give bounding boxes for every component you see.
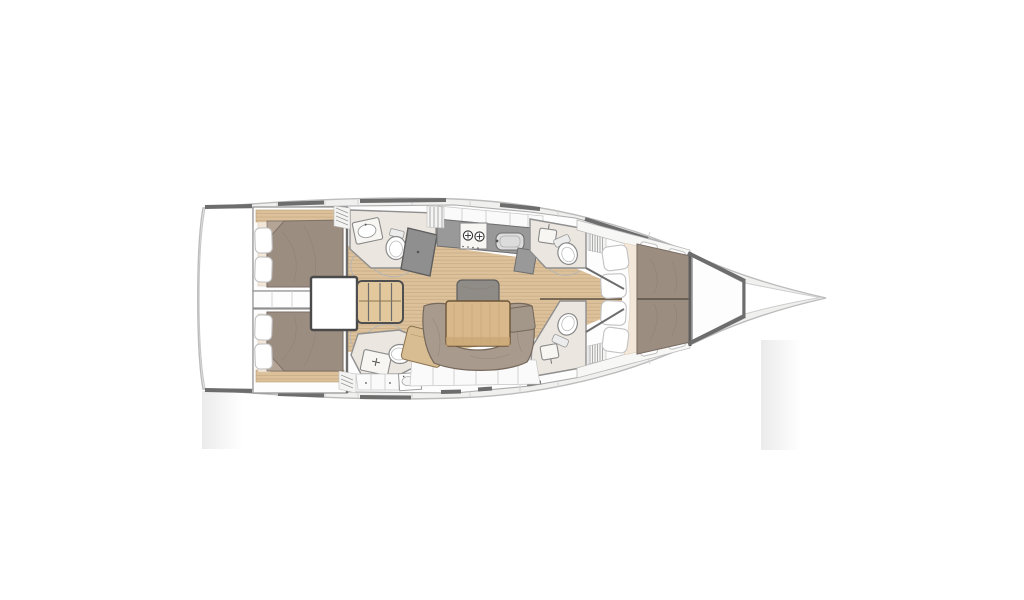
pillow	[255, 344, 273, 370]
engine-box	[311, 277, 357, 330]
pillow	[255, 257, 273, 283]
hatch	[334, 206, 350, 229]
fade-band-right	[761, 340, 801, 450]
hatch	[427, 206, 444, 228]
pillow	[255, 315, 273, 341]
transom-swim-platform	[199, 208, 253, 389]
pillow	[255, 228, 273, 254]
stove	[460, 223, 487, 249]
wardrobe-knob	[417, 251, 420, 254]
locker-row	[356, 374, 399, 390]
stern-locker-strip	[253, 291, 313, 308]
yacht-floorplan-page	[0, 0, 1024, 600]
table-edge-shadow	[446, 337, 510, 346]
pillow	[601, 326, 629, 353]
sink	[352, 217, 383, 244]
bow	[688, 253, 745, 344]
fade-band-left	[202, 391, 242, 449]
pillow	[601, 244, 629, 271]
companionway-steps	[357, 281, 403, 323]
galley-sink	[496, 233, 524, 250]
settee-end-cushion	[506, 305, 535, 332]
yacht-floor-plan	[0, 0, 1024, 600]
salon-table	[446, 301, 510, 346]
hatch	[339, 371, 356, 393]
